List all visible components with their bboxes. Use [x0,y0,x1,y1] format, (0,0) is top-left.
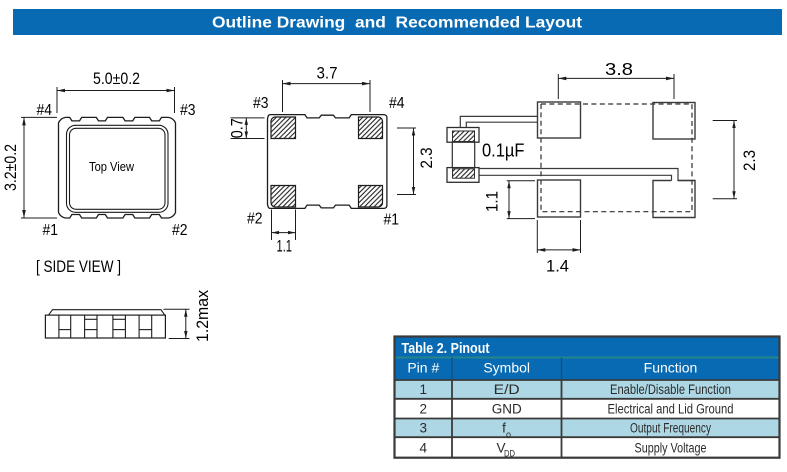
svg-text:o: o [506,430,511,440]
svg-text:Supply Voltage: Supply Voltage [635,441,707,456]
svg-text:2.3: 2.3 [740,150,759,171]
svg-text:1.4: 1.4 [546,257,569,276]
svg-text:3.7: 3.7 [317,64,338,83]
svg-text:Symbol: Symbol [483,360,530,376]
svg-text:2: 2 [420,402,428,417]
svg-text:Top View: Top View [89,159,135,174]
svg-text:3.8: 3.8 [605,59,633,79]
svg-text:#2: #2 [247,211,263,228]
svg-text:Table 2. Pinout: Table 2. Pinout [402,341,490,357]
svg-text:5.0±0.2: 5.0±0.2 [93,69,140,88]
svg-text:Outline Drawing and Recommen: Outline Drawing and Recommended Layout [212,15,583,32]
svg-text:DD: DD [504,449,515,459]
svg-text:1.1: 1.1 [483,191,502,212]
svg-text:Function: Function [644,360,698,376]
svg-text:#1: #1 [43,222,59,239]
svg-text:#4: #4 [389,95,405,112]
svg-text:1.1: 1.1 [277,237,293,256]
svg-text:Enable/Disable Function: Enable/Disable Function [610,382,731,397]
svg-text:#3: #3 [253,95,269,112]
svg-text:#3: #3 [180,102,196,119]
svg-text:4: 4 [420,441,428,456]
svg-text:E/D: E/D [494,382,520,397]
svg-text:0.7: 0.7 [228,118,247,138]
svg-text:2.3: 2.3 [417,148,436,169]
svg-text:Electrical and Lid Ground: Electrical and Lid Ground [608,402,734,417]
svg-text:#4: #4 [37,102,53,119]
svg-text:Pin #: Pin # [407,360,439,376]
svg-text:Output Frequency: Output Frequency [630,421,711,436]
svg-text:1: 1 [420,382,428,397]
svg-text:3.2±0.2: 3.2±0.2 [1,144,20,191]
svg-text:[ SIDE VIEW ]: [ SIDE VIEW ] [36,257,121,276]
svg-text:#2: #2 [172,222,188,239]
svg-text:#1: #1 [384,212,400,229]
svg-text:0.1µF: 0.1µF [482,140,525,160]
svg-text:1.2max: 1.2max [193,290,212,342]
svg-text:3: 3 [420,421,428,436]
svg-text:GND: GND [492,402,522,417]
